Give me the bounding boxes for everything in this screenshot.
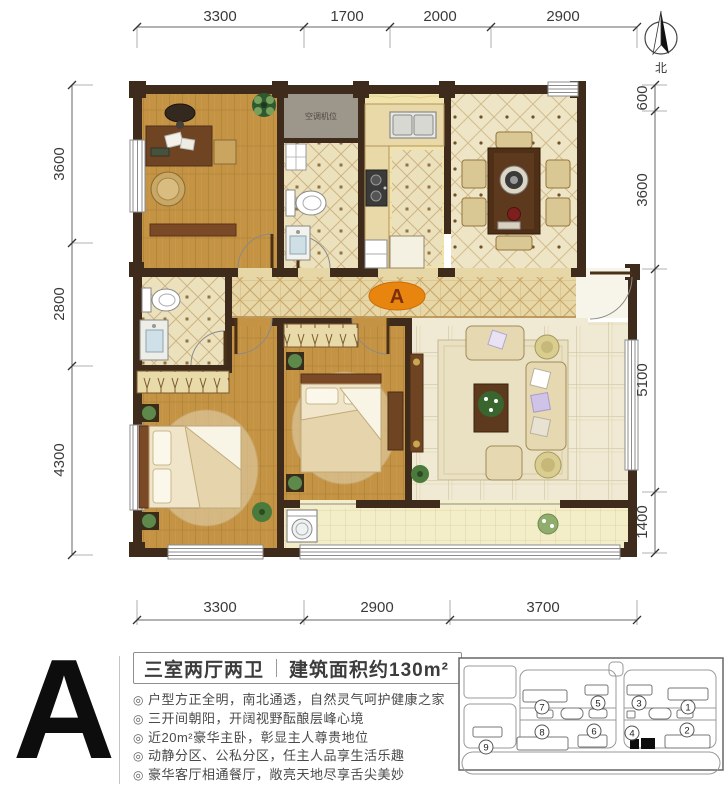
svg-text:1700: 1700 — [330, 8, 363, 25]
room-balcony — [284, 508, 628, 548]
dimension-top: 3300 1700 2000 2900 — [133, 8, 641, 48]
bullet-icon: ◎ — [133, 729, 144, 748]
building-number: 9 — [479, 740, 493, 754]
svg-text:2800: 2800 — [51, 287, 68, 320]
tv-cabinet — [410, 354, 423, 452]
bullet-icon: ◎ — [133, 710, 144, 729]
site-plan: 1 2 3 4 5 6 7 8 9 — [455, 650, 727, 778]
building-number: 7 — [535, 700, 549, 714]
svg-text:2900: 2900 — [360, 599, 393, 616]
wardrobe-master — [284, 324, 358, 347]
svg-text:600: 600 — [634, 85, 651, 110]
feature-list: ◎ 户型方正全明，南北通透，自然灵气呵护健康之家 ◎ 三开间朝阳，开阔视野酝酿层… — [133, 691, 463, 785]
feature-text: 户型方正全明，南北通透，自然灵气呵护健康之家 — [148, 691, 445, 710]
svg-text:2000: 2000 — [423, 8, 456, 25]
bullet-icon: ◎ — [133, 766, 144, 785]
feature-text: 三开间朝阳，开阔视野酝酿层峰心境 — [148, 710, 364, 729]
feature-item: ◎ 户型方正全明，南北通透，自然灵气呵护健康之家 — [133, 691, 463, 710]
dimension-bottom: 3300 2900 3700 — [133, 599, 641, 625]
feature-item: ◎ 豪华客厅相通餐厅，敞亮天地尽享舌尖美妙 — [133, 766, 463, 785]
entry-area — [576, 277, 628, 318]
feature-text: 动静分区、公私分区，任主人品享生活乐趣 — [148, 747, 405, 766]
svg-text:1400: 1400 — [634, 505, 651, 538]
feature-text: 豪华客厅相通餐厅，敞亮天地尽享舌尖美妙 — [148, 766, 405, 785]
unit-marker: A — [369, 282, 425, 310]
svg-text:3300: 3300 — [203, 599, 236, 616]
svg-text:3: 3 — [636, 699, 641, 710]
dimension-left: 3600 2800 4300 — [51, 81, 93, 559]
building-number: 3 — [632, 696, 646, 710]
svg-text:4: 4 — [629, 729, 634, 740]
svg-text:2: 2 — [684, 726, 689, 737]
feature-item: ◎ 动静分区、公私分区，任主人品享生活乐趣 — [133, 747, 463, 766]
svg-text:3600: 3600 — [634, 173, 651, 206]
building-number: 5 — [591, 696, 605, 710]
feature-item: ◎ 近20m²豪华主卧，彰显主人尊贵地位 — [133, 729, 463, 748]
building-number: 1 — [681, 700, 695, 714]
bullet-icon: ◎ — [133, 747, 144, 766]
building-number: 2 — [680, 723, 694, 737]
building-number: 8 — [535, 725, 549, 739]
svg-text:1: 1 — [685, 703, 690, 714]
building-number: 6 — [587, 724, 601, 738]
layout-type-label: 三室两厅两卫 — [144, 655, 264, 682]
north-indicator: 北 — [645, 11, 677, 75]
svg-text:7: 7 — [539, 703, 544, 714]
svg-text:3700: 3700 — [526, 599, 559, 616]
svg-text:2900: 2900 — [546, 8, 579, 25]
ac-unit-label: 空调机位 — [305, 111, 337, 121]
svg-text:5: 5 — [595, 699, 600, 710]
svg-text:9: 9 — [483, 743, 488, 754]
building-number: 4 — [625, 726, 639, 740]
unit-marker-label: A — [390, 286, 404, 308]
dimension-right: 600 3600 5100 1400 — [634, 81, 667, 557]
wardrobe-bedroom1 — [137, 371, 229, 393]
title-separator — [276, 659, 277, 677]
svg-text:8: 8 — [539, 728, 544, 739]
unit-letter: A — [10, 644, 118, 784]
svg-text:3300: 3300 — [203, 8, 236, 25]
svg-text:4300: 4300 — [51, 443, 68, 476]
svg-text:5100: 5100 — [634, 363, 651, 396]
unit-title-box: 三室两厅两卫 建筑面积约130m² — [133, 652, 462, 684]
floor-plan: A 空调机位 — [0, 0, 728, 645]
floor-plan-page: A 空调机位 — [0, 0, 728, 800]
divider — [119, 656, 120, 784]
feature-item: ◎ 三开间朝阳，开阔视野酝酿层峰心境 — [133, 710, 463, 729]
north-label: 北 — [655, 61, 667, 75]
svg-text:3600: 3600 — [51, 147, 68, 180]
svg-text:6: 6 — [591, 727, 596, 738]
feature-text: 近20m²豪华主卧，彰显主人尊贵地位 — [148, 729, 369, 748]
bullet-icon: ◎ — [133, 691, 144, 710]
area-label: 建筑面积约130m² — [289, 655, 449, 682]
plant — [252, 93, 276, 117]
